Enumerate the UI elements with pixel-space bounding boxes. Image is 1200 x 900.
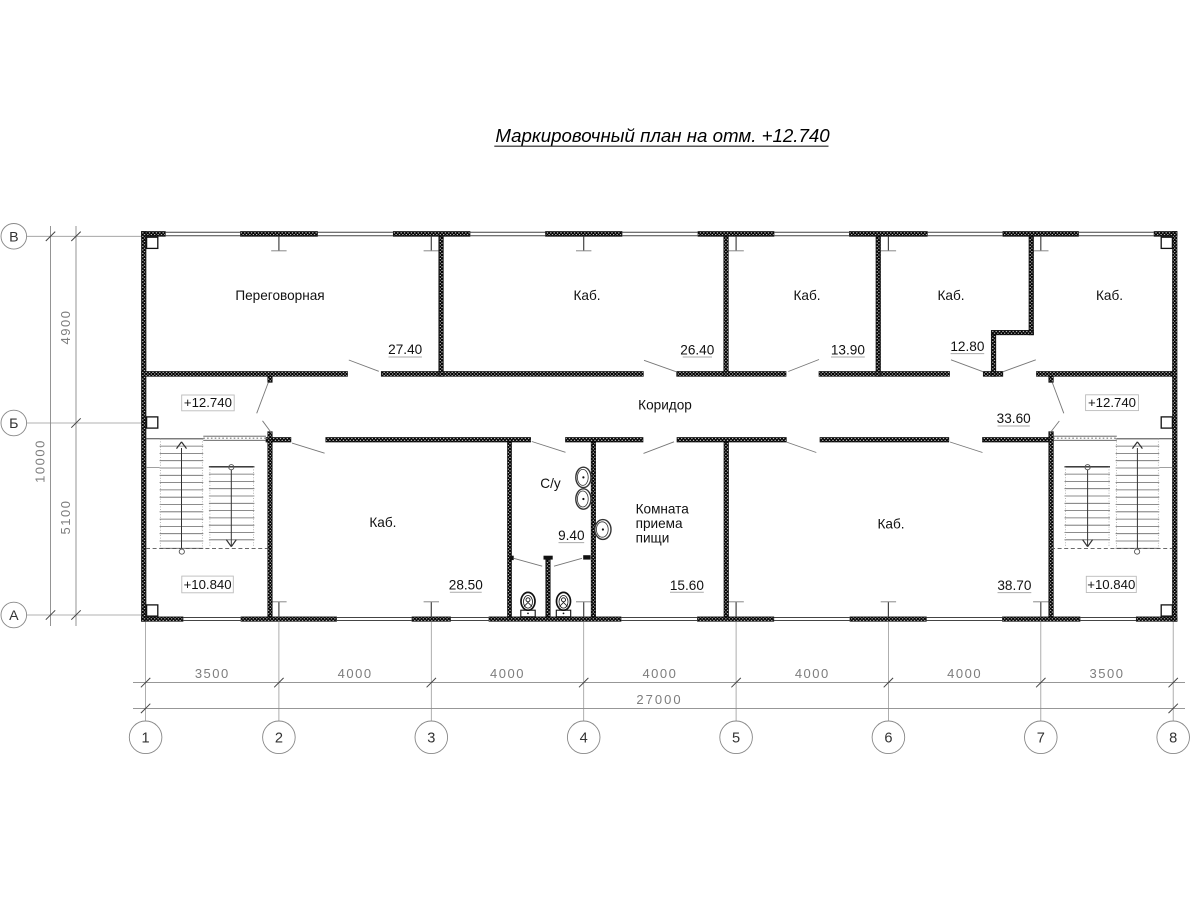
svg-text:Каб.: Каб. <box>1096 288 1123 303</box>
svg-text:В: В <box>9 229 18 245</box>
svg-text:33.60: 33.60 <box>997 411 1031 426</box>
svg-text:3: 3 <box>427 731 435 747</box>
svg-text:2: 2 <box>275 731 283 747</box>
svg-text:Коридор: Коридор <box>638 398 692 413</box>
svg-text:Каб.: Каб. <box>877 517 904 532</box>
svg-text:1: 1 <box>142 731 150 747</box>
svg-text:4000: 4000 <box>947 666 982 681</box>
svg-text:4000: 4000 <box>795 666 830 681</box>
svg-text:5100: 5100 <box>58 500 73 535</box>
svg-text:6: 6 <box>884 731 892 747</box>
svg-text:26.40: 26.40 <box>680 342 714 357</box>
svg-text:3500: 3500 <box>195 666 230 681</box>
svg-text:13.90: 13.90 <box>831 342 865 357</box>
svg-text:28.50: 28.50 <box>449 578 483 593</box>
svg-text:4000: 4000 <box>642 666 677 681</box>
svg-text:пищи: пищи <box>636 530 670 545</box>
svg-text:Каб.: Каб. <box>793 288 820 303</box>
svg-text:Каб.: Каб. <box>573 288 600 303</box>
svg-text:С/у: С/у <box>540 476 561 491</box>
svg-text:+10.840: +10.840 <box>1087 577 1135 592</box>
svg-text:4: 4 <box>580 731 588 747</box>
svg-text:4000: 4000 <box>338 666 373 681</box>
svg-text:27000: 27000 <box>636 692 682 707</box>
svg-text:3500: 3500 <box>1090 666 1125 681</box>
svg-text:38.70: 38.70 <box>997 578 1031 593</box>
svg-text:12.80: 12.80 <box>950 339 984 354</box>
svg-text:Маркировочный план на отм. +12: Маркировочный план на отм. +12.740 <box>495 125 830 146</box>
svg-text:27.40: 27.40 <box>388 342 422 357</box>
svg-text:9.40: 9.40 <box>558 528 585 543</box>
svg-text:+10.840: +10.840 <box>184 577 232 592</box>
svg-text:4000: 4000 <box>490 666 525 681</box>
svg-text:Комната: Комната <box>636 501 690 516</box>
svg-text:5: 5 <box>732 731 740 747</box>
svg-text:8: 8 <box>1169 731 1177 747</box>
svg-text:А: А <box>9 608 19 624</box>
svg-text:+12.740: +12.740 <box>184 395 232 410</box>
svg-text:15.60: 15.60 <box>670 578 704 593</box>
svg-text:Каб.: Каб. <box>937 288 964 303</box>
svg-text:Б: Б <box>9 416 18 432</box>
svg-text:Каб.: Каб. <box>369 515 396 530</box>
svg-text:4900: 4900 <box>58 310 73 345</box>
svg-text:приема: приема <box>636 516 683 531</box>
svg-text:+12.740: +12.740 <box>1088 395 1136 410</box>
svg-text:10000: 10000 <box>33 439 48 483</box>
svg-text:Переговорная: Переговорная <box>235 288 324 303</box>
svg-text:7: 7 <box>1037 731 1045 747</box>
